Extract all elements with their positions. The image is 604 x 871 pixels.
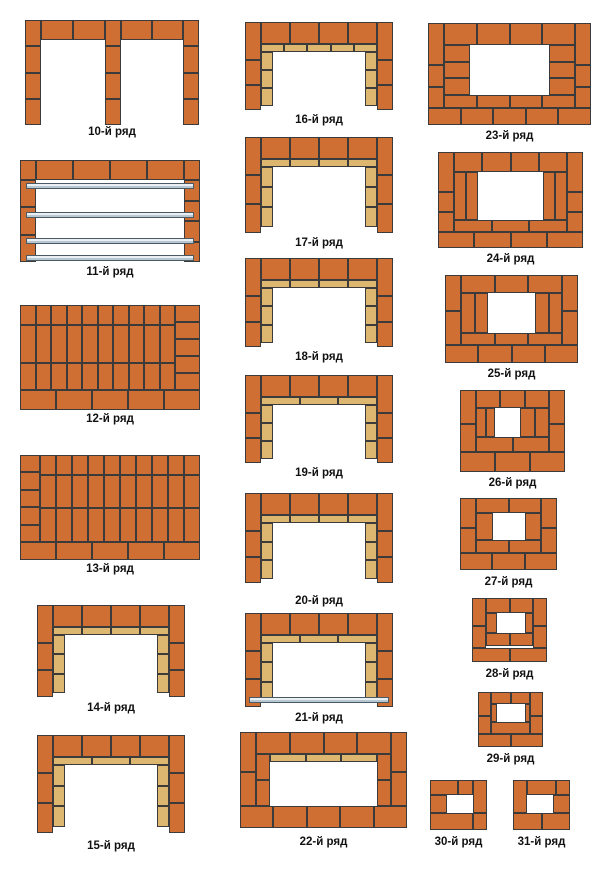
ceramic-brick: [25, 99, 41, 125]
fireclay-brick: [82, 627, 111, 635]
ceramic-brick: [377, 413, 393, 438]
row-26-diagram: [460, 390, 565, 472]
ceramic-brick: [549, 78, 575, 95]
ceramic-brick: [25, 20, 41, 46]
ceramic-brick: [543, 172, 555, 220]
row-19-label: 19-й ряд: [245, 467, 393, 479]
ceramic-brick: [486, 613, 497, 633]
ceramic-brick: [290, 137, 319, 159]
ceramic-brick: [377, 175, 393, 204]
ceramic-brick: [175, 322, 200, 339]
fireclay-brick: [157, 635, 169, 654]
ceramic-brick: [36, 160, 73, 180]
fireclay-brick: [261, 306, 273, 324]
ceramic-brick: [482, 152, 510, 172]
ceramic-brick: [438, 192, 454, 212]
ceramic-brick: [129, 305, 145, 325]
fireclay-brick: [261, 405, 273, 423]
ceramic-brick: [175, 305, 200, 322]
row-14-label: 14-й ряд: [37, 702, 185, 714]
ceramic-brick: [377, 613, 393, 651]
ceramic-brick: [51, 305, 67, 325]
fireclay-brick: [338, 635, 377, 643]
ceramic-brick: [184, 160, 200, 180]
row-25-label: 25-й ряд: [445, 368, 578, 380]
ceramic-brick: [152, 20, 183, 40]
ceramic-brick: [438, 152, 454, 192]
ceramic-brick: [472, 598, 486, 626]
ceramic-brick: [20, 455, 40, 472]
ceramic-brick: [51, 363, 67, 390]
fireclay-brick: [157, 765, 169, 786]
row-15-diagram: [37, 735, 185, 833]
ceramic-brick: [525, 553, 557, 570]
ceramic-brick: [245, 413, 261, 438]
ceramic-brick: [357, 732, 391, 754]
fireclay-brick: [365, 423, 377, 441]
ceramic-brick: [72, 455, 88, 475]
ceramic-brick: [37, 605, 53, 643]
ceramic-brick: [240, 732, 256, 772]
ceramic-brick: [476, 498, 509, 513]
ceramic-brick: [500, 390, 524, 408]
row-28-diagram: [472, 598, 547, 662]
ceramic-brick: [20, 525, 40, 542]
fireclay-brick: [261, 280, 290, 288]
ceramic-brick: [169, 670, 185, 697]
row-13-label: 13-й ряд: [20, 563, 200, 575]
fireclay-brick: [157, 654, 169, 673]
ceramic-brick: [549, 424, 565, 452]
steel-lintel-bar: [26, 238, 194, 244]
ceramic-brick: [261, 22, 290, 44]
ceramic-brick: [37, 803, 53, 833]
ceramic-brick: [511, 152, 539, 172]
fireclay-brick: [261, 207, 273, 227]
row-19-diagram: [245, 375, 393, 463]
ceramic-brick: [460, 424, 476, 452]
fireclay-brick: [53, 654, 65, 673]
ceramic-brick: [445, 345, 478, 363]
fireclay-brick: [261, 167, 273, 187]
ceramic-brick: [160, 363, 176, 390]
ceramic-brick: [92, 542, 128, 560]
ceramic-brick: [511, 692, 531, 704]
ceramic-brick: [520, 408, 535, 437]
ceramic-brick: [430, 780, 458, 795]
ceramic-brick: [183, 46, 199, 72]
ceramic-brick: [319, 22, 348, 44]
ceramic-brick: [562, 275, 578, 311]
ceramic-brick: [377, 438, 393, 463]
ceramic-brick: [88, 455, 104, 475]
ceramic-brick: [98, 325, 114, 363]
ceramic-brick: [513, 813, 542, 830]
ceramic-brick: [164, 390, 200, 410]
ceramic-brick: [444, 23, 477, 45]
ceramic-brick: [319, 375, 348, 397]
row-11-diagram: [20, 160, 200, 262]
ceramic-brick: [428, 108, 461, 125]
ceramic-brick: [478, 692, 491, 716]
ceramic-brick: [460, 390, 476, 424]
fireclay-brick: [261, 560, 273, 579]
ceramic-brick: [111, 605, 140, 627]
ceramic-brick: [72, 475, 88, 508]
fireclay-brick: [348, 515, 377, 523]
ceramic-brick: [290, 613, 319, 635]
ceramic-brick: [377, 780, 391, 806]
ceramic-brick: [53, 605, 82, 627]
ceramic-brick: [25, 46, 41, 72]
fireclay-brick: [365, 523, 377, 542]
ceramic-brick: [160, 305, 176, 325]
ceramic-brick: [88, 475, 104, 508]
fireclay-brick: [261, 635, 300, 643]
ceramic-brick: [377, 204, 393, 233]
ceramic-brick: [40, 508, 56, 542]
ceramic-brick: [20, 507, 40, 524]
fireclay-brick: [365, 187, 377, 207]
ceramic-brick: [169, 803, 185, 833]
row-22-label: 22-й ряд: [240, 836, 407, 848]
ceramic-brick: [476, 408, 486, 437]
ceramic-brick: [461, 108, 494, 125]
ceramic-brick: [460, 498, 476, 528]
ceramic-brick: [20, 160, 36, 180]
ceramic-brick: [510, 598, 534, 613]
fireclay-brick: [319, 280, 348, 288]
ceramic-brick: [477, 95, 510, 108]
ceramic-brick: [82, 605, 111, 627]
ceramic-brick: [245, 296, 261, 322]
ceramic-brick: [111, 735, 140, 757]
ceramic-brick: [140, 605, 169, 627]
ceramic-brick: [526, 108, 559, 125]
ceramic-brick: [377, 651, 393, 679]
ceramic-brick: [549, 62, 575, 79]
fireclay-brick: [306, 754, 342, 762]
row-30-label: 30-й ряд: [430, 836, 487, 848]
ceramic-brick: [67, 363, 83, 390]
fireclay-brick: [365, 70, 377, 88]
ceramic-brick: [530, 452, 565, 472]
ceramic-brick: [567, 152, 583, 192]
ceramic-brick: [542, 813, 570, 830]
ceramic-brick: [495, 452, 530, 472]
ceramic-brick: [20, 305, 36, 325]
ceramic-brick: [377, 60, 393, 85]
ceramic-brick: [120, 475, 136, 508]
ceramic-brick: [460, 452, 495, 472]
ceramic-brick: [348, 137, 377, 159]
ceramic-brick: [169, 735, 185, 773]
ceramic-brick: [256, 754, 270, 780]
ceramic-brick: [391, 772, 407, 806]
ceramic-brick: [245, 438, 261, 463]
row-29-label: 29-й ряд: [478, 753, 543, 765]
ceramic-brick: [290, 493, 319, 515]
ceramic-brick: [183, 73, 199, 99]
ceramic-brick: [454, 152, 482, 172]
ceramic-brick: [37, 643, 53, 670]
ceramic-brick: [184, 455, 200, 475]
ceramic-brick: [164, 542, 200, 560]
ceramic-brick: [458, 780, 473, 795]
ceramic-brick: [509, 498, 542, 513]
ceramic-brick: [168, 455, 184, 475]
ceramic-brick: [53, 735, 82, 757]
ceramic-brick: [290, 22, 319, 44]
ceramic-brick: [558, 108, 591, 125]
ceramic-brick: [511, 734, 544, 747]
ceramic-brick: [562, 311, 578, 345]
ceramic-brick: [245, 137, 261, 175]
row-16-diagram: [245, 22, 393, 110]
fireclay-brick: [365, 325, 377, 343]
ceramic-brick: [128, 542, 164, 560]
ceramic-brick: [541, 498, 557, 528]
ceramic-brick: [445, 275, 461, 311]
ceramic-brick: [245, 60, 261, 85]
ceramic-brick: [510, 633, 534, 646]
ceramic-brick: [105, 46, 121, 72]
brick-course-figure: 10-й ряд11-й ряд12-й ряд13-й ряд14-й ряд…: [0, 0, 604, 871]
ceramic-brick: [290, 732, 324, 754]
ceramic-brick: [391, 732, 407, 772]
ceramic-brick: [556, 780, 570, 795]
row-24-label: 24-й ряд: [438, 253, 583, 265]
ceramic-brick: [20, 390, 56, 410]
ceramic-brick: [474, 232, 510, 248]
ceramic-brick: [528, 333, 562, 345]
ceramic-brick: [98, 305, 114, 325]
fireclay-brick: [365, 52, 377, 70]
ceramic-brick: [98, 363, 114, 390]
ceramic-brick: [20, 363, 36, 390]
ceramic-brick: [444, 95, 477, 108]
ceramic-brick: [475, 293, 489, 333]
ceramic-brick: [477, 23, 510, 45]
ceramic-brick: [473, 780, 487, 813]
fireclay-brick: [348, 280, 377, 288]
ceramic-brick: [256, 780, 270, 806]
ceramic-brick: [261, 258, 290, 280]
ceramic-brick: [461, 275, 495, 293]
ceramic-brick: [129, 325, 145, 363]
fireclay-brick: [365, 405, 377, 423]
ceramic-brick: [428, 23, 444, 65]
ceramic-brick: [575, 87, 591, 109]
ceramic-brick: [261, 613, 290, 635]
ceramic-brick: [525, 390, 549, 408]
fireclay-brick: [53, 765, 65, 786]
ceramic-brick: [245, 175, 261, 204]
ceramic-brick: [348, 22, 377, 44]
ceramic-brick: [444, 45, 470, 62]
ceramic-brick: [113, 363, 129, 390]
ceramic-brick: [261, 137, 290, 159]
fireclay-brick: [365, 441, 377, 459]
fireclay-brick: [261, 523, 273, 542]
fireclay-brick: [331, 44, 354, 52]
ceramic-brick: [245, 651, 261, 679]
ceramic-brick: [129, 363, 145, 390]
ceramic-brick: [377, 85, 393, 110]
ceramic-brick: [428, 65, 444, 87]
ceramic-brick: [175, 356, 200, 373]
row-16-label: 16-й ряд: [245, 114, 393, 126]
fireclay-brick: [365, 643, 377, 662]
steel-lintel-bar: [26, 212, 194, 218]
row-14-diagram: [37, 605, 185, 697]
ceramic-brick: [144, 325, 160, 363]
fireclay-brick: [53, 635, 65, 654]
ceramic-brick: [476, 390, 500, 408]
fireclay-brick: [261, 44, 284, 52]
ceramic-brick: [466, 172, 478, 220]
ceramic-brick: [476, 540, 509, 553]
ceramic-brick: [152, 475, 168, 508]
fireclay-brick: [261, 397, 300, 405]
fireclay-brick: [157, 786, 169, 807]
row-20-diagram: [245, 493, 393, 583]
ceramic-brick: [486, 598, 510, 613]
ceramic-brick: [160, 325, 176, 363]
ceramic-brick: [20, 325, 36, 363]
fireclay-brick: [261, 662, 273, 681]
ceramic-brick: [175, 339, 200, 356]
fireclay-brick: [365, 167, 377, 187]
ceramic-brick: [82, 363, 98, 390]
row-11-label: 11-й ряд: [20, 266, 200, 278]
ceramic-brick: [377, 22, 393, 60]
ceramic-brick: [555, 172, 567, 220]
ceramic-brick: [476, 437, 513, 452]
fireclay-brick: [261, 70, 273, 88]
fireclay-brick: [307, 44, 330, 52]
fireclay-brick: [261, 52, 273, 70]
ceramic-brick: [493, 108, 526, 125]
row-25-diagram: [445, 275, 578, 363]
ceramic-brick: [377, 137, 393, 175]
ceramic-brick: [478, 734, 511, 747]
ceramic-brick: [495, 275, 529, 293]
ceramic-brick: [547, 232, 583, 248]
ceramic-brick: [530, 692, 543, 716]
ceramic-brick: [256, 732, 290, 754]
ceramic-brick: [460, 553, 492, 570]
ceramic-brick: [491, 692, 511, 704]
ceramic-brick: [245, 531, 261, 557]
ceramic-brick: [438, 232, 474, 248]
ceramic-brick: [478, 345, 511, 363]
ceramic-brick: [56, 542, 92, 560]
fireclay-brick: [261, 325, 273, 343]
ceramic-brick: [307, 806, 340, 828]
fireclay-brick: [53, 674, 65, 693]
ceramic-brick: [261, 375, 290, 397]
ceramic-brick: [40, 455, 56, 475]
ceramic-brick: [495, 333, 529, 345]
ceramic-brick: [528, 275, 562, 293]
fireclay-brick: [300, 397, 339, 405]
fireclay-brick: [319, 515, 348, 523]
ceramic-brick: [183, 20, 199, 46]
ceramic-brick: [428, 87, 444, 109]
ceramic-brick: [113, 325, 129, 363]
ceramic-brick: [36, 325, 52, 363]
ceramic-brick: [169, 643, 185, 670]
ceramic-brick: [175, 373, 200, 390]
ceramic-brick: [348, 258, 377, 280]
ceramic-brick: [492, 220, 530, 232]
ceramic-brick: [549, 293, 563, 333]
ceramic-brick: [438, 212, 454, 232]
ceramic-brick: [461, 293, 475, 333]
ceramic-brick: [377, 754, 391, 780]
fireclay-brick: [300, 635, 339, 643]
ceramic-brick: [377, 557, 393, 583]
ceramic-brick: [539, 152, 567, 172]
ceramic-brick: [105, 99, 121, 125]
ceramic-brick: [82, 325, 98, 363]
ceramic-brick: [136, 455, 152, 475]
steel-lintel-bar: [26, 255, 194, 261]
fireclay-brick: [261, 441, 273, 459]
row-28-label: 28-й ряд: [472, 668, 547, 680]
ceramic-brick: [40, 475, 56, 508]
ceramic-brick: [73, 20, 105, 40]
row-31-label: 31-й ряд: [513, 836, 570, 848]
fireclay-brick: [319, 159, 348, 167]
ceramic-brick: [533, 598, 547, 626]
ceramic-brick: [492, 553, 524, 570]
fireclay-brick: [130, 757, 169, 765]
ceramic-brick: [37, 773, 53, 803]
ceramic-brick: [73, 160, 110, 180]
ceramic-brick: [567, 212, 583, 232]
fireclay-brick: [365, 306, 377, 324]
fireclay-brick: [365, 207, 377, 227]
ceramic-brick: [273, 806, 306, 828]
ceramic-brick: [473, 813, 487, 830]
ceramic-brick: [545, 345, 578, 363]
ceramic-brick: [121, 20, 152, 40]
fireclay-brick: [261, 542, 273, 561]
fireclay-brick: [365, 662, 377, 681]
fireclay-brick: [365, 542, 377, 561]
ceramic-brick: [290, 258, 319, 280]
row-21-diagram: [245, 613, 393, 707]
ceramic-brick: [113, 305, 129, 325]
ceramic-brick: [319, 613, 348, 635]
row-10-label: 10-й ряд: [25, 126, 199, 138]
ceramic-brick: [37, 670, 53, 697]
fireclay-brick: [111, 627, 140, 635]
ceramic-brick: [245, 85, 261, 110]
ceramic-brick: [240, 806, 273, 828]
ceramic-brick: [104, 455, 120, 475]
ceramic-brick: [136, 475, 152, 508]
ceramic-brick: [374, 806, 407, 828]
row-31-diagram: [513, 780, 570, 830]
fireclay-brick: [290, 280, 319, 288]
ceramic-brick: [36, 305, 52, 325]
ceramic-brick: [120, 455, 136, 475]
ceramic-brick: [245, 322, 261, 348]
row-18-label: 18-й ряд: [245, 351, 393, 363]
